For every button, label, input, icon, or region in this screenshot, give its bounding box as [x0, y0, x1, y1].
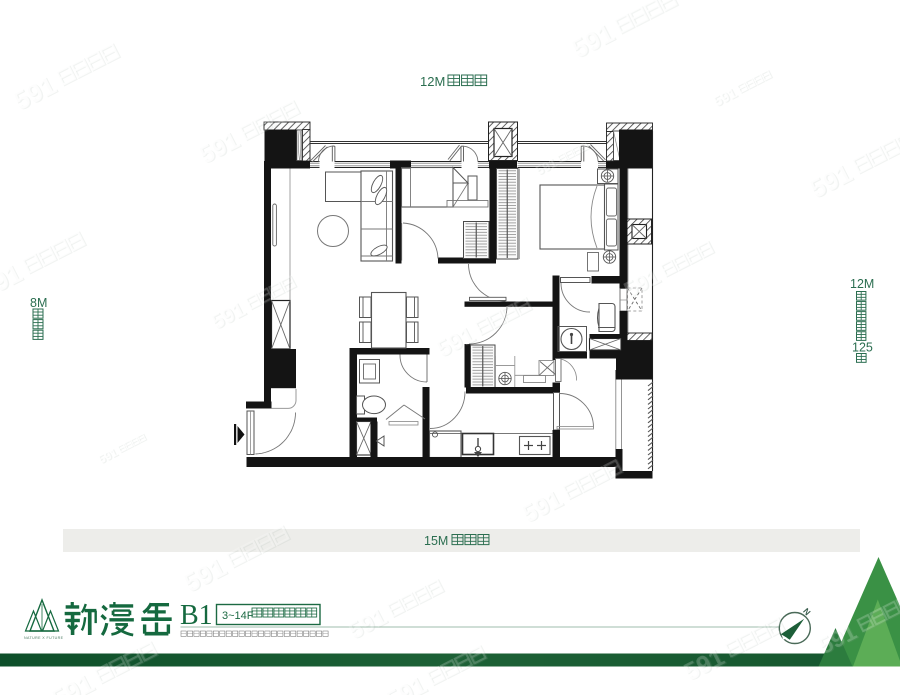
svg-text:8M: 8M [30, 296, 47, 310]
svg-text:B1: B1 [180, 600, 213, 631]
svg-text:125: 125 [852, 341, 873, 355]
svg-text:15M: 15M [424, 534, 448, 548]
svg-text:NATURE X FUTURE: NATURE X FUTURE [24, 636, 64, 640]
svg-text:12M: 12M [850, 277, 874, 291]
svg-text:12M: 12M [420, 74, 445, 89]
svg-text:3~14F: 3~14F [222, 610, 254, 622]
